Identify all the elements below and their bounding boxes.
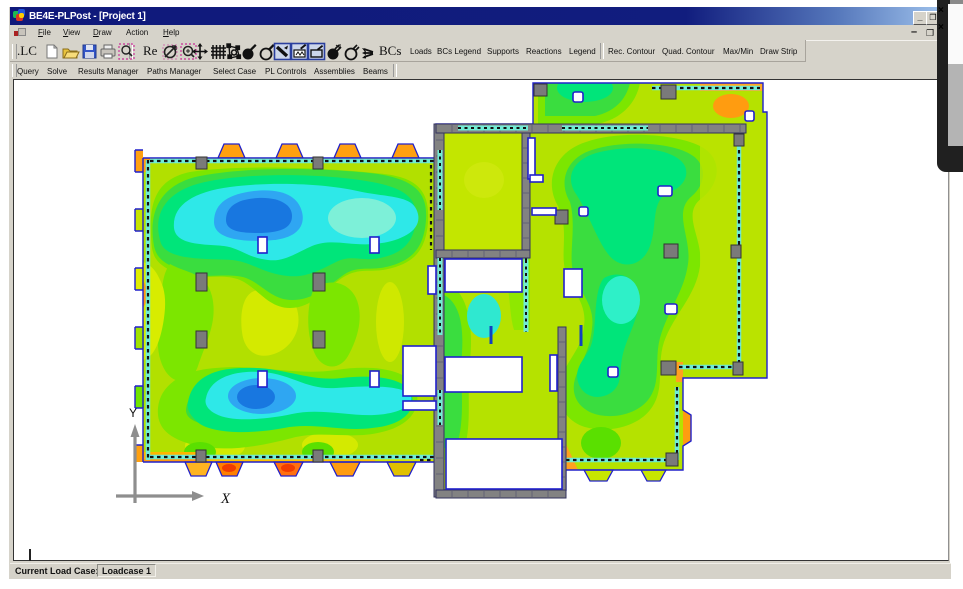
svg-text:Y: Y	[129, 406, 137, 420]
svg-text:X: X	[220, 491, 231, 507]
